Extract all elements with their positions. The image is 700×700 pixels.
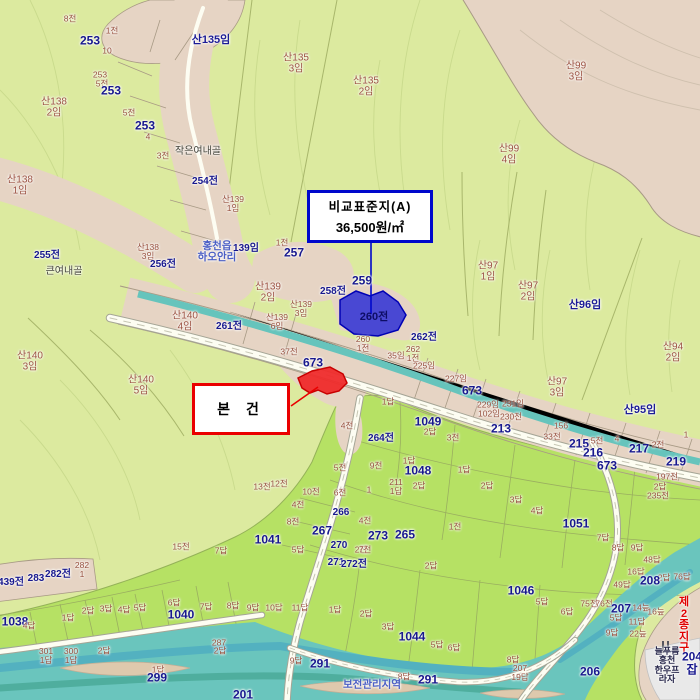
parcel-label: 259 [352, 275, 372, 288]
parcel-label: 253 [135, 120, 155, 133]
parcel-label: 225임 [413, 362, 435, 371]
parcel-label: 10 [102, 47, 111, 56]
parcel-label: 197전 [656, 473, 678, 482]
parcel-label: 1답 [152, 666, 165, 675]
parcel-label: 291 [310, 658, 330, 671]
label-layer: 8전1전25310산135임산135 3임산135 2임산99 3임2535전2… [0, 0, 700, 700]
parcel-label: 2답 [425, 562, 438, 571]
parcel-label: 1답 [458, 466, 471, 475]
parcel-label: 272전 [341, 560, 367, 571]
parcel-label: 11답 [292, 604, 309, 613]
parcel-label: 207 [611, 603, 631, 616]
parcel-label: 산138 2임 [41, 98, 67, 119]
parcel-label: 4 [615, 435, 620, 444]
parcel-label: 산135임 [192, 35, 231, 47]
parcel-label: 2전 [355, 546, 368, 555]
parcel-label: 253 [80, 35, 100, 48]
parcel-label: 7답 [597, 534, 610, 543]
parcel-label: 76전 [595, 600, 612, 609]
parcel-label: 48답 [643, 556, 660, 565]
parcel-label: 5전 [123, 109, 136, 118]
parcel-label: 8답 [612, 544, 625, 553]
parcel-label: 산97 3임 [547, 378, 567, 399]
cadastral-map-canvas: 8전1전25310산135임산135 3임산135 2임산99 3임2535전2… [0, 0, 700, 700]
parcel-label: 2전 [652, 441, 665, 450]
parcel-label: 16늪 [647, 608, 664, 617]
parcel-label: 8답 [507, 656, 520, 665]
parcel-label: 산139 3임 [290, 300, 312, 318]
parcel-label: 산99 4임 [499, 145, 519, 166]
parcel-label: 홍천읍 하오안리 [198, 241, 237, 263]
parcel-label: 2답 [658, 574, 671, 583]
parcel-label: 산135 2임 [353, 77, 379, 98]
parcel-label: 10전 [302, 488, 319, 497]
parcel-label: 늘푸름홍천 한우프라자 [651, 647, 684, 685]
parcel-label: 673 [462, 385, 482, 398]
parcel-label: 14늪 [632, 604, 649, 613]
parcel-label: 13전 [253, 483, 270, 492]
parcel-label: 291 [418, 674, 438, 687]
subject-annotation: 본 건 [192, 383, 290, 435]
comparison-standard-annotation: 비교표준지(A) 36,500원/㎡ [307, 190, 433, 243]
parcel-label: 673 [597, 460, 617, 473]
parcel-label: 1답 [62, 614, 75, 623]
parcel-label: 219 [666, 456, 686, 469]
parcel-label: 257 [284, 247, 304, 260]
parcel-label: 15전 [172, 543, 189, 552]
parcel-label: 6답 [168, 599, 181, 608]
parcel-label: 207 19답 [511, 664, 528, 682]
parcel-label: 5답 [134, 604, 147, 613]
parcel-label: 262전 [411, 333, 437, 344]
parcel-label: 217 [629, 443, 649, 456]
parcel-label: 5답 [610, 614, 623, 623]
parcel-label: 33전 [543, 433, 560, 442]
parcel-label: 1 [367, 486, 372, 495]
parcel-label: 1041 [255, 534, 282, 547]
parcel-label: 8전 [64, 15, 77, 24]
comparison-title: 비교표준지(A) [310, 196, 430, 215]
parcel-label: 산139 1임 [222, 195, 244, 213]
parcel-label: 9전 [370, 462, 383, 471]
parcel-label: 216 [583, 447, 603, 460]
parcel-label: 287 [212, 639, 226, 648]
parcel-label: 1답 [403, 457, 416, 466]
subject-label: 본 건 [217, 399, 265, 419]
parcel-label: 1049 [415, 416, 442, 429]
parcel-label: 35임 [387, 352, 404, 361]
parcel-label: 260 1전 [356, 335, 370, 353]
parcel-label: 4전 [341, 422, 354, 431]
parcel-label: 235전 [647, 492, 669, 501]
parcel-label: 6답 [561, 608, 574, 617]
parcel-label: 22늪 [629, 630, 646, 639]
parcel-label: 1전 [449, 523, 462, 532]
parcel-label: 282 1 [75, 561, 89, 579]
parcel-label: 3답 [510, 496, 523, 505]
parcel-label: 보전관리지역 [343, 679, 401, 690]
parcel-label: 76답 [673, 573, 690, 582]
parcel-label: 227임 [445, 375, 467, 384]
parcel-label: 산139 2임 [255, 283, 281, 304]
parcel-label: 7답 [200, 603, 213, 612]
comparison-price: 36,500원/㎡ [310, 217, 430, 236]
parcel-label: 2답 [214, 647, 227, 656]
parcel-label: 7답 [215, 547, 228, 556]
parcel-label: 1답 [382, 398, 395, 407]
parcel-label: 12전 [270, 480, 287, 489]
parcel-label: 큰여내골 [46, 267, 83, 278]
parcel-label: 1046 [508, 585, 535, 598]
parcel-label: 2답 [360, 610, 373, 619]
parcel-label: 3전 [447, 434, 460, 443]
parcel-label: 1044 [399, 631, 426, 644]
parcel-label: 260전 [360, 312, 388, 324]
parcel-label: 작은여내골 [175, 147, 221, 158]
parcel-label: 1038 [2, 616, 29, 629]
parcel-label: 산140 5임 [128, 376, 154, 397]
parcel-label: 2답 [481, 482, 494, 491]
parcel-label: 6전 [334, 489, 347, 498]
parcel-label: 10답 [265, 604, 282, 613]
parcel-label: 산94 2임 [663, 343, 683, 364]
parcel-label: 231임 [502, 400, 524, 409]
parcel-label: 102임 [478, 410, 500, 419]
parcel-label: 253 [101, 85, 121, 98]
parcel-label: 215 [569, 438, 589, 451]
parcel-label: 8답 [227, 602, 240, 611]
parcel-label: 273 [368, 530, 388, 543]
parcel-label: 1답 [329, 606, 342, 615]
parcel-label: 9답 [247, 604, 260, 613]
parcel-label: 4답 [23, 622, 36, 631]
parcel-label: 11답 [629, 618, 646, 627]
parcel-label: 4전 [359, 517, 372, 526]
parcel-label: 산139 6임 [266, 313, 288, 331]
parcel-label: 5전 [334, 464, 347, 473]
parcel-label: 1 [684, 431, 689, 440]
parcel-label: 211 1답 [389, 478, 403, 496]
parcel-label: 673 [303, 357, 323, 370]
parcel-label: 208 [640, 575, 660, 588]
parcel-label: 8전 [287, 518, 300, 527]
parcel-label: 16답 [627, 568, 644, 577]
parcel-label: 256전 [150, 260, 176, 271]
parcel-label: 제2종지구 [676, 597, 692, 655]
parcel-label: 산97 2임 [518, 282, 538, 303]
parcel-label: 3답 [100, 605, 113, 614]
parcel-label: 230전 [500, 413, 522, 422]
parcel-label: 201 [233, 689, 253, 700]
parcel-label: 2답 [654, 483, 667, 492]
parcel-label: 2답 [82, 607, 95, 616]
parcel-label: 산97 1임 [478, 262, 498, 283]
parcel-label: 254전 [192, 177, 218, 188]
parcel-label: 3전 [157, 152, 170, 161]
parcel-label: 산99 3임 [566, 62, 586, 83]
parcel-label: 산140 3임 [17, 352, 43, 373]
parcel-label: 산96임 [569, 300, 601, 312]
parcel-label: 산138 3임 [137, 243, 159, 261]
parcel-label: 264전 [368, 434, 394, 445]
parcel-label: 255전 [34, 251, 60, 262]
parcel-label: 5답 [536, 598, 549, 607]
parcel-label: 266 [333, 508, 350, 519]
parcel-label: 5전 [591, 437, 604, 446]
parcel-label: 49답 [613, 581, 630, 590]
parcel-label: 4답 [118, 606, 131, 615]
parcel-label: 2답 [424, 428, 437, 437]
parcel-label: 267 [312, 525, 332, 538]
parcel-label: 261전 [216, 322, 242, 333]
parcel-label: 4답 [531, 507, 544, 516]
parcel-label: 37전 [280, 348, 297, 357]
parcel-label: 156 [554, 422, 568, 431]
parcel-label: 1051 [563, 518, 590, 531]
parcel-label: 5답 [292, 546, 305, 555]
parcel-label: 5답 [431, 641, 444, 650]
parcel-label: 262 1전 [406, 345, 420, 363]
parcel-label: 253 [93, 71, 107, 80]
parcel-label: 439전 [0, 578, 24, 589]
parcel-label: 산95임 [624, 405, 656, 417]
parcel-label: 9답 [631, 544, 644, 553]
parcel-label: 1전 [106, 27, 119, 36]
parcel-label: 7전 [359, 546, 372, 555]
parcel-label: 8답 [398, 673, 411, 682]
parcel-label: 4 [146, 133, 151, 142]
parcel-label: 258전 [320, 287, 346, 298]
parcel-label: 299 [147, 672, 167, 685]
parcel-label: 204잡 [682, 650, 700, 675]
parcel-label: 75전 [580, 600, 597, 609]
parcel-label: 산135 3임 [283, 54, 309, 75]
parcel-label: 산138 1임 [7, 176, 33, 197]
parcel-label: 271 [328, 558, 345, 569]
parcel-label: 1048 [405, 465, 432, 478]
parcel-label: 6답 [448, 644, 461, 653]
parcel-label: 2답 [98, 647, 111, 656]
parcel-label: 265 [395, 529, 415, 542]
parcel-label: 9답 [606, 629, 619, 638]
parcel-label: 283 [28, 574, 45, 585]
parcel-label: 9답 [290, 657, 303, 666]
parcel-label: 300 1답 [64, 647, 78, 665]
parcel-label: 5전 [96, 80, 109, 89]
parcel-label: 301 1답 [39, 647, 53, 665]
parcel-label: 229임 [477, 401, 499, 410]
parcel-label: 산140 4임 [172, 312, 198, 333]
parcel-label: 213 [491, 423, 511, 436]
parcel-label: 3답 [382, 623, 395, 632]
parcel-label: 270 [331, 541, 348, 552]
parcel-label: 1040 [168, 609, 195, 622]
parcel-label: 206 [580, 666, 600, 679]
parcel-label: 1전 [276, 239, 289, 248]
parcel-label: 4전 [292, 501, 305, 510]
parcel-label: 139임 [233, 244, 259, 255]
parcel-label: 282전 [45, 570, 71, 581]
parcel-label: 2답 [413, 482, 426, 491]
